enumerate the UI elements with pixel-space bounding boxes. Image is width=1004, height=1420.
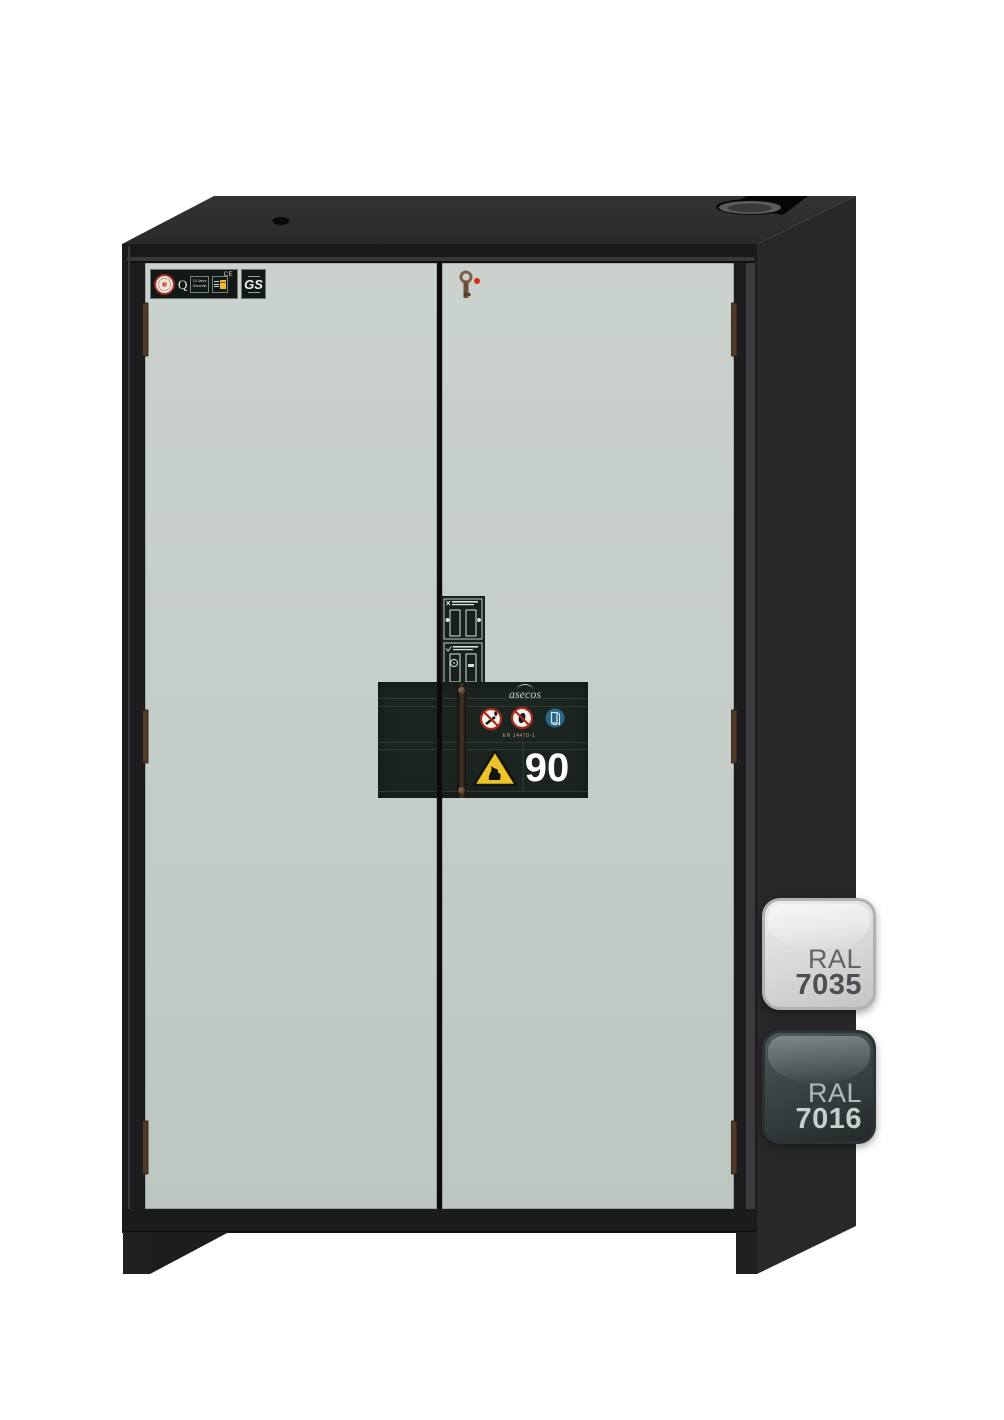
ral-7016-code: 7016 [795,1106,862,1134]
made-in-box [212,276,228,293]
ce-mark: CE [224,272,233,278]
flag-icon [220,280,226,289]
foot-left-wedge [150,1232,229,1274]
ral-7035-swatch: RAL 7035 [762,898,876,1010]
quality-q-mark: Q [178,278,187,291]
ral-7016-swatch: RAL 7016 [762,1030,876,1144]
handle-screw-bottom [458,787,465,794]
product-image: Q 10 Jahre Garantie CE GS [0,0,1004,1420]
left-frame-highlight [128,246,130,1272]
gs-mark: GS [244,278,263,291]
warranty-box: 10 Jahre Garantie [190,276,209,293]
approval-seal-icon [154,274,175,295]
certification-plate: Q 10 Jahre Garantie CE [150,269,238,299]
foot-left [123,1232,150,1274]
handle-screw-top [458,687,465,694]
standard-text: EN 14470-1 [473,734,565,739]
door-instruction-sticker [441,596,485,686]
flammable-warning-icon [474,751,516,785]
micro-text-lines [214,280,219,289]
foot-right [736,1232,757,1274]
close-doors-wrong-icon [446,601,482,636]
front-header-bevel [127,257,754,261]
type-plate: asecos EN 14470 [378,682,588,798]
ral-7035-code: 7035 [795,972,862,1000]
lock-indicator-dot [474,278,480,284]
gs-plate: GS [241,269,266,299]
warranty-line2: Garantie [193,285,207,289]
fire-rating: 90 [524,746,570,790]
door-handle [457,683,466,798]
right-frame-bevel [746,263,755,1209]
close-doors-correct-icon [446,646,478,682]
warranty-line1: 10 Jahre [193,279,207,283]
keep-closed-icon [546,709,565,728]
plinth [122,1209,757,1232]
front-header-band [122,244,757,258]
no-open-flames-icon [481,709,501,729]
no-access-icon [512,708,532,728]
top-vent-hole-small [273,217,290,225]
exhaust-port-inner [728,204,772,213]
